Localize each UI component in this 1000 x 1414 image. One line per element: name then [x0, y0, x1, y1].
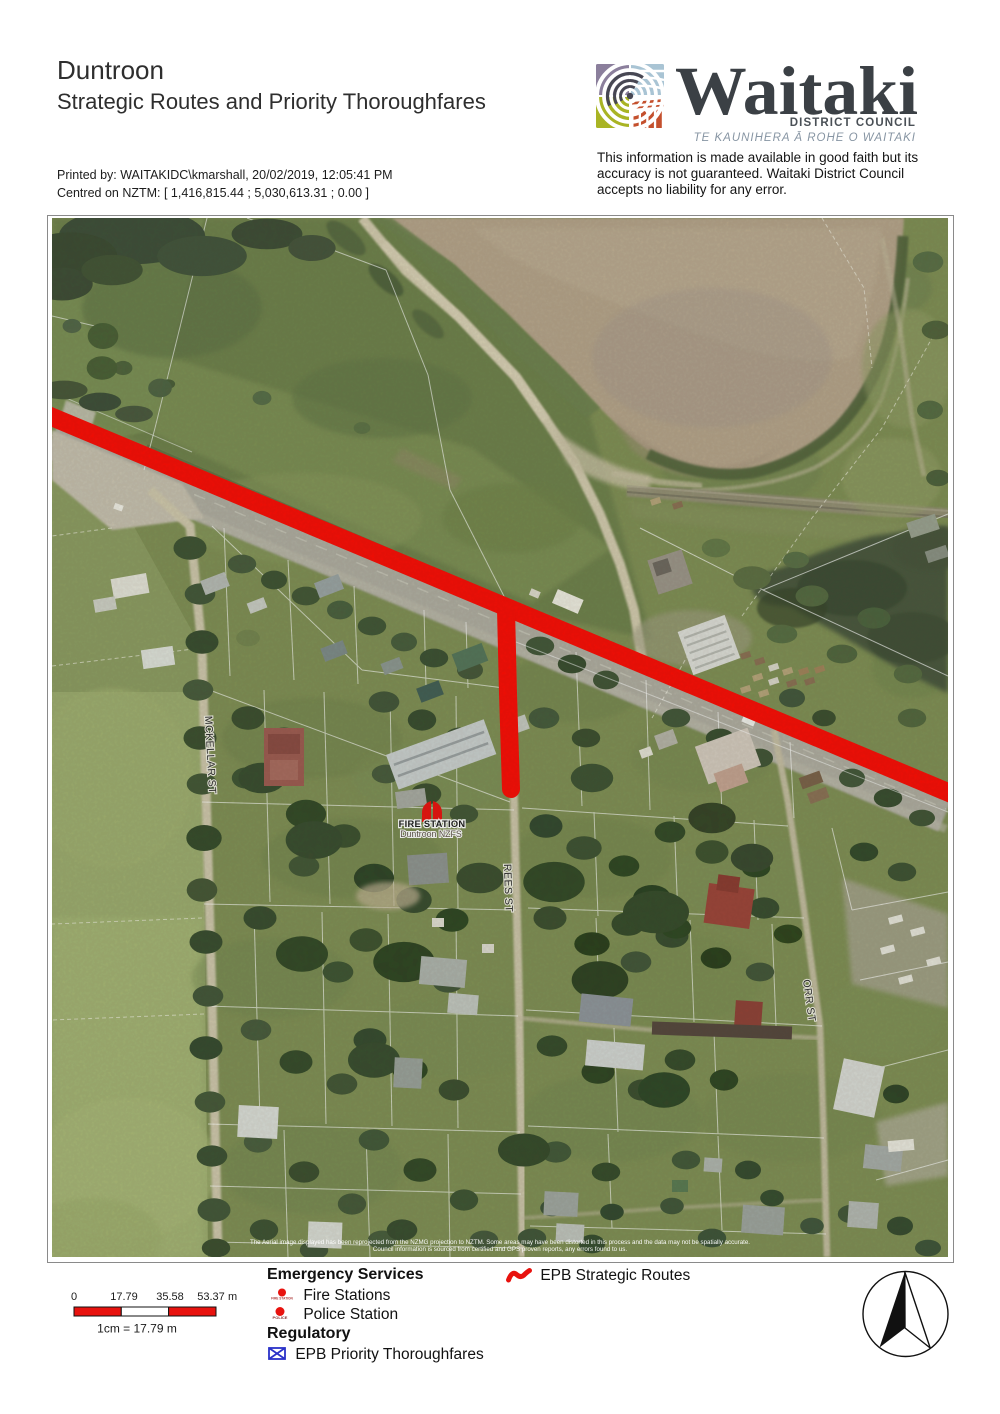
svg-text:53.37: 53.37	[197, 1291, 225, 1303]
svg-text:35.58: 35.58	[156, 1291, 184, 1303]
svg-text:The Aerial image displayed has: The Aerial image displayed has been repr…	[250, 1239, 750, 1246]
svg-text:FIRE STATION: FIRE STATION	[271, 1297, 293, 1301]
svg-text:POLICE: POLICE	[273, 1315, 288, 1320]
svg-text:TE KAUNIHERA Ā ROHE O WAITAKI: TE KAUNIHERA Ā ROHE O WAITAKI	[694, 132, 916, 144]
svg-text:1cm = 17.79 m: 1cm = 17.79 m	[97, 1322, 177, 1336]
svg-text:DISTRICT COUNCIL: DISTRICT COUNCIL	[790, 117, 916, 129]
svg-text:0: 0	[71, 1291, 77, 1303]
svg-text:17.79: 17.79	[110, 1291, 138, 1303]
svg-text:m: m	[228, 1291, 237, 1303]
svg-text:Council information is sourced: Council information is sourced from cert…	[373, 1246, 627, 1253]
